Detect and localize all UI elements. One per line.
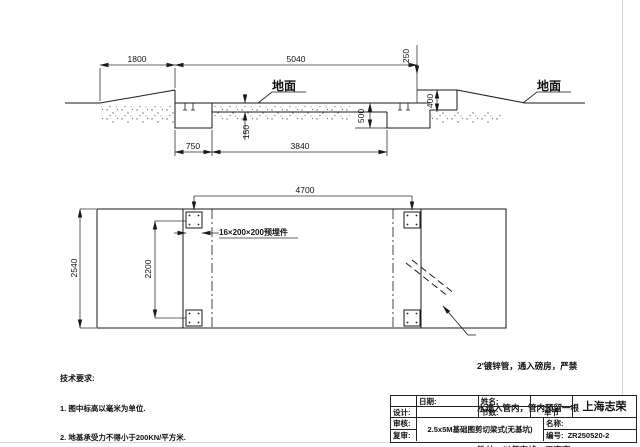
dim-500: 500 <box>356 109 366 123</box>
tech-title: 技术要求: <box>60 374 274 384</box>
tech-item-2: 2. 地基承受力不得小于200KN/平方米. <box>60 433 274 443</box>
tb-sections-value: 单节 <box>531 407 573 418</box>
dim-750: 750 <box>186 141 200 151</box>
pipe-note-line3: 铁丝，以便穿线，无直弯 <box>477 443 579 447</box>
ground-label-right: 地面 <box>537 78 561 93</box>
tb-date-label: 日期: <box>417 396 479 407</box>
cad-drawing-sheet: 1800 5040 250 400 500 150 750 3840 地面 地面 <box>0 0 640 447</box>
pipe-leader <box>443 306 476 335</box>
pipe-note-line1: 2'镀锌管，通入磅房，严禁 <box>477 359 579 373</box>
tb-name-label: 姓名: <box>479 396 531 407</box>
tb-title-field-label: 名称: <box>544 418 636 430</box>
dim-400: 400 <box>425 94 435 108</box>
tb-number-value: ZR250520-2 <box>568 430 610 441</box>
conduit-pipe <box>406 260 455 297</box>
right-ramp <box>457 90 525 103</box>
tb-empty-2 <box>531 396 573 407</box>
tb-empty-3 <box>417 407 479 418</box>
tb-recheck-label: 复审: <box>391 430 417 442</box>
dim-5040: 5040 <box>287 54 306 64</box>
plan-view <box>97 209 506 335</box>
anchor-bolts-right <box>398 103 410 110</box>
left-ramp <box>100 90 175 103</box>
anchor-bolts-left <box>183 103 195 110</box>
embedded-plate-label: 16×200×200预埋件 <box>219 227 288 237</box>
sheet-border-horizontal <box>0 442 390 443</box>
tb-empty-1 <box>391 396 417 407</box>
section-view <box>65 90 585 128</box>
dim-4700: 4700 <box>296 185 315 195</box>
dim-1800: 1800 <box>128 54 147 64</box>
foundation-outline <box>97 209 506 328</box>
tb-check-label: 审核: <box>391 418 417 430</box>
dim-3840: 3840 <box>291 141 310 151</box>
dim-250: 250 <box>401 49 411 63</box>
sheet-border-vertical <box>622 0 623 395</box>
title-block: 日期: 姓名: 上海志荣 设计: 节数: 单节 审核: 2.5x5M基础图剪切梁… <box>390 395 637 443</box>
tech-item-1: 1. 图中标高以毫米为单位. <box>60 404 274 414</box>
dim-150: 150 <box>241 125 251 139</box>
technical-requirements: 技术要求: 1. 图中标高以毫米为单位. 2. 地基承受力不得小于200KN/平… <box>60 355 274 447</box>
tb-design-label: 设计: <box>391 407 417 418</box>
tb-drawing-title: 2.5x5M基础图剪切梁式(无基坑) <box>417 418 544 441</box>
soil-hatch <box>101 105 501 123</box>
tb-company: 上海志荣 <box>573 396 636 418</box>
tb-number-field: 编号: ZR250520-2 <box>544 430 636 442</box>
dim-2200: 2200 <box>143 259 153 278</box>
dim-2540: 2540 <box>69 258 79 277</box>
section-dimensions <box>100 45 571 156</box>
ground-label-left: 地面 <box>272 78 296 93</box>
tb-sections-label: 节数: <box>479 407 531 418</box>
plan-dimensions <box>80 196 412 328</box>
tb-number-label: 编号: <box>546 430 564 441</box>
